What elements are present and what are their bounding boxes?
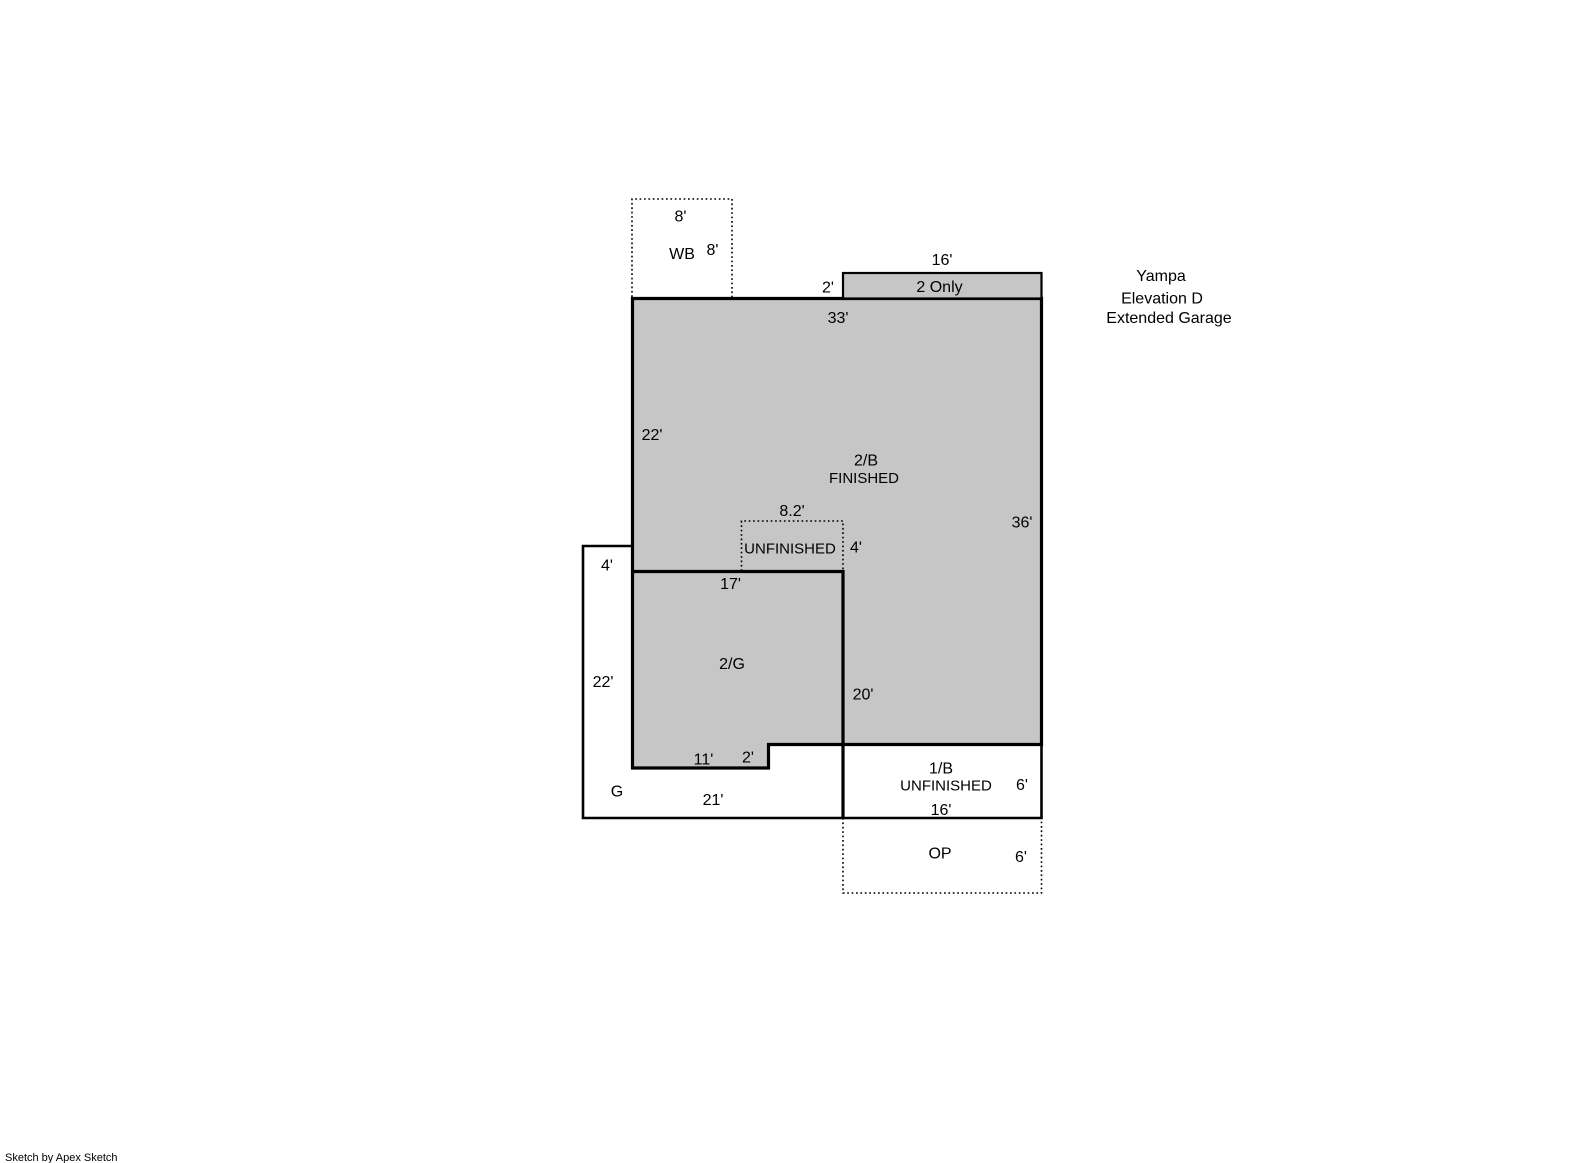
svg-text:UNFINISHED: UNFINISHED: [900, 778, 992, 795]
svg-text:21': 21': [703, 792, 724, 809]
svg-text:11': 11': [694, 752, 714, 769]
svg-text:8': 8': [707, 242, 719, 259]
svg-text:17': 17': [720, 576, 741, 593]
svg-text:WB: WB: [669, 246, 695, 263]
svg-text:8': 8': [675, 209, 687, 226]
svg-text:Sketch by Apex Sketch: Sketch by Apex Sketch: [5, 1152, 118, 1163]
svg-text:1/B: 1/B: [929, 761, 953, 778]
svg-text:4': 4': [850, 540, 862, 557]
svg-text:2/B: 2/B: [854, 453, 878, 470]
svg-text:G: G: [611, 784, 623, 801]
svg-text:FINISHED: FINISHED: [829, 470, 899, 487]
svg-text:2/G: 2/G: [719, 656, 745, 673]
svg-text:Yampa: Yampa: [1136, 268, 1186, 285]
svg-text:22': 22': [593, 674, 614, 691]
svg-text:20': 20': [853, 687, 874, 704]
svg-text:Elevation D: Elevation D: [1121, 291, 1203, 308]
svg-text:16': 16': [932, 252, 953, 269]
svg-text:6': 6': [1015, 849, 1027, 866]
svg-text:2': 2': [822, 280, 834, 297]
svg-text:UNFINISHED: UNFINISHED: [744, 541, 836, 558]
svg-text:22': 22': [642, 427, 663, 444]
svg-text:2': 2': [742, 750, 754, 767]
svg-text:33': 33': [828, 310, 849, 327]
svg-text:8.2': 8.2': [779, 503, 804, 520]
svg-text:4': 4': [601, 558, 613, 575]
svg-text:16': 16': [931, 802, 952, 819]
svg-text:2 Only: 2 Only: [916, 279, 962, 296]
svg-text:OP: OP: [928, 846, 951, 863]
svg-text:Extended Garage: Extended Garage: [1106, 310, 1232, 327]
svg-text:36': 36': [1012, 515, 1033, 532]
svg-text:6': 6': [1016, 777, 1028, 794]
